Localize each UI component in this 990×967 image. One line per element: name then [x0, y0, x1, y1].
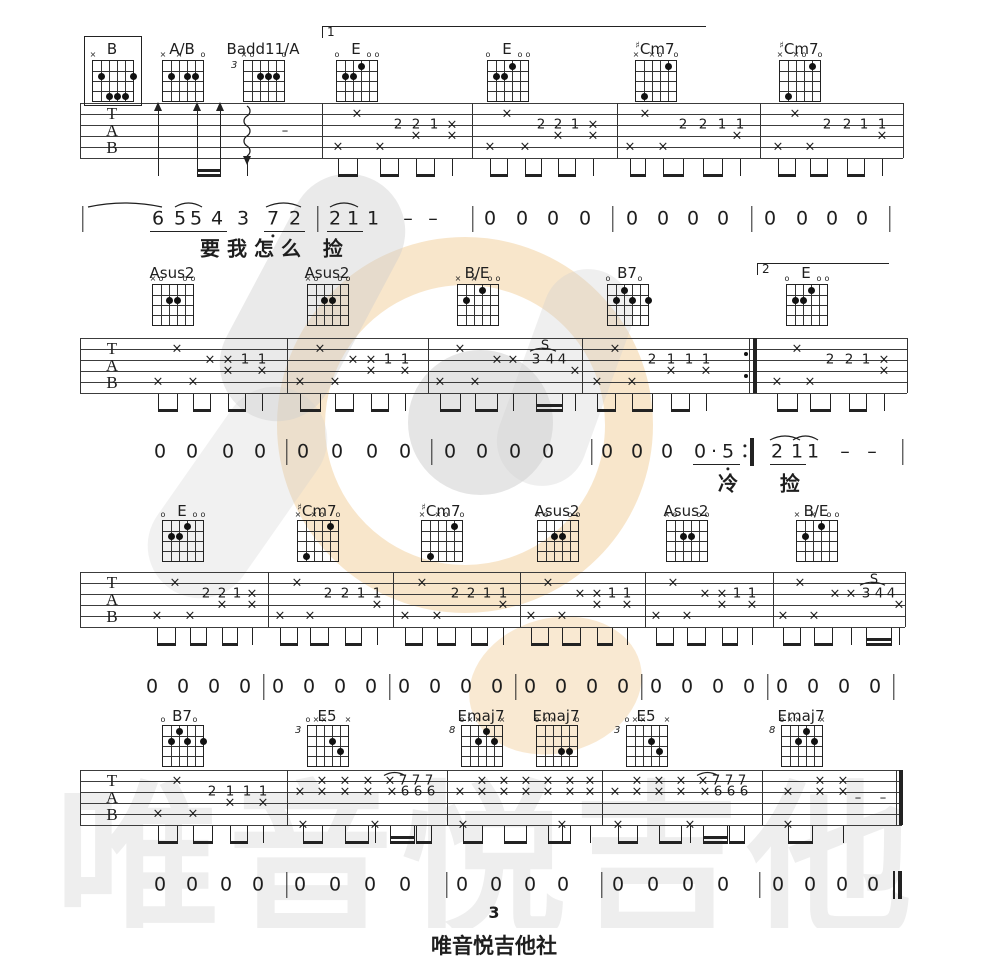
jianpu-rest: 0: [524, 876, 536, 895]
mute-marker: ×: [319, 715, 329, 724]
chord-dot: [641, 93, 648, 100]
tab-mute-note: ×: [217, 599, 228, 612]
open-marker: o: [822, 274, 832, 283]
chord-grid-line: [153, 305, 193, 306]
chord-grid: ×ooo: [152, 284, 194, 326]
jianpu-barline: [902, 439, 903, 465]
chord-dot: [551, 533, 558, 540]
tab-mute-note: ×: [485, 141, 496, 154]
chord-grid: ×ooo: [537, 520, 579, 562]
jianpu-rest: 0: [399, 876, 411, 895]
tab-note: 2: [699, 119, 708, 132]
barline: [428, 338, 429, 393]
tab-mute-note: ×: [352, 108, 363, 121]
note-stem: [752, 628, 753, 645]
jianpu-note: 2: [771, 443, 783, 462]
beam: [558, 174, 576, 177]
beam: [390, 841, 415, 844]
tab-note: 4: [558, 354, 567, 367]
chord-dot: [176, 533, 183, 540]
chord-grid-line: [538, 551, 578, 552]
beam: [228, 409, 246, 412]
chord-grid-line: [187, 726, 188, 766]
tab-mute-note: ×: [205, 354, 216, 367]
jianpu-rest: 0: [272, 678, 284, 697]
jianpu-barline: [767, 674, 768, 700]
tab-mute-note: ×: [348, 354, 359, 367]
staff-line: [80, 382, 907, 383]
chord-grid-line: [244, 91, 284, 92]
chord-dot: [493, 73, 500, 80]
chord-dot: [451, 523, 458, 530]
jianpu-barline: [263, 674, 264, 700]
tab-mute-note: ×: [188, 376, 199, 389]
tab-note: 1: [430, 119, 439, 132]
chord-grid-line: [462, 746, 502, 747]
open-marker: o: [372, 50, 382, 59]
jianpu-rest: 0: [867, 876, 879, 895]
chord-grid-line: [537, 736, 577, 737]
tab-mute-note: ×: [747, 599, 758, 612]
jianpu-rest: 0: [297, 443, 309, 462]
chord-grid: o×××3: [626, 725, 668, 767]
jianpu-rest: 0: [717, 876, 729, 895]
chord-grid: oo: [607, 284, 649, 326]
chord-grid: ×oo3: [243, 60, 285, 102]
jianpu-rest: 0: [239, 678, 251, 697]
chord-dot: [803, 728, 810, 735]
tab-mute-note: ×: [502, 108, 513, 121]
tab-note: 6: [714, 786, 723, 799]
jianpu-note: 2: [329, 210, 341, 229]
jianpu-rest: 0: [429, 678, 441, 697]
chord-grid-line: [797, 531, 837, 532]
tab-mute-note: ×: [152, 610, 163, 623]
open-marker: o: [158, 510, 168, 519]
beam: [703, 174, 723, 177]
tab-note: 1: [243, 786, 252, 799]
jianpu-note: 3: [237, 210, 249, 229]
tab-note: 3: [862, 588, 871, 601]
chord-dot: [174, 297, 181, 304]
chord-grid-line: [787, 295, 827, 296]
chord-grid-line: [627, 746, 667, 747]
jianpu-rest: 0: [764, 210, 776, 229]
chord-dot: [792, 297, 799, 304]
chord-dot: [114, 93, 121, 100]
tab-mute-note: ×: [682, 610, 693, 623]
tab-note: 1: [685, 354, 694, 367]
chord-grid-line: [163, 756, 203, 757]
beam: [338, 174, 358, 177]
jianpu-note: 5: [722, 443, 734, 462]
chord-grid: ××oo: [457, 284, 499, 326]
note-stem: [690, 826, 691, 843]
tab-mute-note: ×: [317, 786, 328, 799]
tab-note: –: [880, 791, 887, 804]
mute-marker: ×: [631, 50, 641, 59]
barline: [80, 103, 81, 158]
tab-mute-note: ×: [499, 786, 510, 799]
jianpu-rest: 0: [509, 443, 521, 462]
barline: [773, 572, 774, 627]
chord-grid-line: [675, 521, 676, 561]
jianpu-rest: 0: [586, 678, 598, 697]
mute-marker: ×: [158, 50, 168, 59]
open-marker: o: [279, 50, 289, 59]
beam: [778, 174, 796, 177]
tab-note: 2: [537, 119, 546, 132]
jianpu-rest: 0: [252, 876, 264, 895]
open-marker: o: [317, 510, 327, 519]
barline: [762, 770, 763, 825]
open-marker: o: [190, 715, 200, 724]
chord-grid-line: [496, 61, 497, 101]
end-barline: [903, 103, 904, 158]
lyric-syllable: 么: [281, 233, 301, 262]
jianpu-rest: 0: [687, 210, 699, 229]
open-marker: o: [782, 274, 792, 283]
chord-dot: [501, 73, 508, 80]
note-stem: [593, 159, 594, 176]
chord-dot: [483, 728, 490, 735]
jianpu-barline: [286, 872, 287, 898]
beam: [548, 841, 571, 844]
jianpu-rest: 0: [154, 443, 166, 462]
tab-mute-note: ×: [470, 376, 481, 389]
jianpu-rest: 0: [460, 678, 472, 697]
jianpu-note: 5: [174, 210, 186, 229]
beam: [536, 404, 563, 407]
tab-mute-note: ×: [400, 610, 411, 623]
jianpu-note: 5: [190, 210, 202, 229]
jianpu-rest: 0: [516, 210, 528, 229]
tab-note: S: [541, 339, 549, 352]
jianpu-rest: 0: [826, 210, 838, 229]
tab-note: 1: [862, 354, 871, 367]
chord-grid-line: [667, 551, 707, 552]
beam: [659, 841, 682, 844]
chord-grid-line: [494, 726, 495, 766]
note-stem: [263, 826, 264, 843]
jianpu-repeat-dot: [743, 444, 746, 447]
chord-dot: [122, 93, 129, 100]
strum-arrow: [197, 109, 198, 166]
open-marker: o: [156, 274, 166, 283]
chord-grid-line: [244, 71, 284, 72]
beam: [390, 836, 415, 839]
chord-dot: [273, 73, 280, 80]
lyric-syllable: 捡: [780, 468, 800, 497]
chord-grid-line: [538, 541, 578, 542]
chord-grid-line: [667, 531, 707, 532]
chord-dot: [621, 287, 628, 294]
jianpu-repeat-dot: [743, 454, 746, 457]
fret-number: 3: [231, 60, 237, 71]
chord-name: B: [107, 40, 117, 58]
tab-mute-note: ×: [400, 365, 411, 378]
tab-mute-note: ×: [830, 588, 841, 601]
tab-mute-note: ×: [565, 786, 576, 799]
tab-mute-note: ×: [223, 365, 234, 378]
beam: [504, 841, 527, 844]
tab-mute-note: ×: [790, 108, 801, 121]
beam: [597, 643, 613, 646]
jianpu-barline: [591, 439, 592, 465]
repeat-barline-thick: [753, 338, 757, 393]
sheet-page: 唯音悦吉他 TAB–×××221××××××221××××××2211××××2…: [0, 0, 990, 967]
jianpu-barline: [472, 206, 473, 232]
open-marker: o: [158, 715, 168, 724]
chord-dot: [808, 287, 815, 294]
chord-dot: [130, 73, 137, 80]
jianpu-note: –: [403, 210, 413, 229]
chord-dot: [558, 748, 565, 755]
beam: [536, 409, 563, 412]
tab-note: 6: [727, 786, 736, 799]
beam: [463, 841, 483, 844]
tab-mute-note: ×: [632, 786, 643, 799]
barline: [393, 572, 394, 627]
open-marker: o: [702, 510, 712, 519]
lyric-syllable: 捡: [323, 233, 343, 262]
chord-dot: [200, 738, 207, 745]
open-marker: o: [493, 274, 503, 283]
chord-grid-line: [805, 521, 806, 561]
chord-grid-line: [627, 756, 667, 757]
tab-note: 6: [427, 786, 436, 799]
jianpu-rest: 0: [186, 443, 198, 462]
open-marker: o: [198, 510, 208, 519]
chord-dot: [800, 297, 807, 304]
tab-mute-note: ×: [622, 599, 633, 612]
chord-grid-line: [163, 71, 203, 72]
jianpu-rest: 0: [626, 210, 638, 229]
beam: [597, 409, 616, 412]
chord-grid-line: [337, 71, 377, 72]
beam: [437, 643, 456, 646]
jianpu-repeat-thick: [750, 438, 754, 466]
beam: [703, 841, 728, 844]
chord-grid-line: [298, 531, 338, 532]
tab-note: 1: [860, 119, 869, 132]
beam: [190, 643, 207, 646]
jianpu-rest: 0: [804, 876, 816, 895]
beam: [630, 174, 646, 177]
jianpu-barline: [889, 206, 890, 232]
jianpu-rest: 0: [476, 443, 488, 462]
repeat-dot: [744, 352, 748, 356]
tab-mute-note: ×: [330, 376, 341, 389]
tab-note: 1: [357, 588, 366, 601]
chord-grid-line: [814, 726, 815, 766]
jianpu-rest: 0: [254, 443, 266, 462]
jianpu-rest: 0: [657, 210, 669, 229]
chord-grid: o××o: [536, 725, 578, 767]
chord-grid-line: [458, 315, 498, 316]
beam: [525, 174, 542, 177]
fret-number: 8: [769, 725, 775, 736]
chord-grid-line: [782, 746, 822, 747]
mute-marker: ×: [808, 510, 818, 519]
beam: [222, 643, 238, 646]
tab-mute-note: ×: [333, 141, 344, 154]
jianpu-rest: 0: [647, 876, 659, 895]
jianpu-rest: 0: [220, 876, 232, 895]
open-marker: o: [635, 274, 645, 283]
tab-note: 2: [451, 588, 460, 601]
jianpu-rest: 0: [154, 876, 166, 895]
note-stem: [627, 628, 628, 645]
chord-grid-line: [169, 285, 170, 325]
chord-dot: [802, 533, 809, 540]
jianpu-rest: 0: [717, 210, 729, 229]
open-marker: o: [483, 50, 493, 59]
beam: [193, 409, 211, 412]
tab-note: 2: [208, 786, 217, 799]
tab-mute-note: ×: [815, 786, 826, 799]
chord-dot: [98, 73, 105, 80]
barline: [602, 770, 603, 825]
mute-marker: ×: [174, 50, 184, 59]
chord-grid-line: [422, 531, 462, 532]
chord-grid-line: [93, 81, 133, 82]
chord-grid-line: [422, 541, 462, 542]
chord-dot: [329, 738, 336, 745]
chord-grid-line: [683, 521, 684, 561]
chord-dot: [665, 63, 672, 70]
chord-grid-line: [422, 551, 462, 552]
beam: [345, 643, 362, 646]
jianpu-rest: 0: [547, 210, 559, 229]
beam: [847, 174, 865, 177]
chord-dot: [166, 297, 173, 304]
tab-mute-note: ×: [257, 365, 268, 378]
tab-note: 4: [875, 588, 884, 601]
tab-letter: B: [106, 373, 117, 393]
tab-mute-note: ×: [879, 365, 890, 378]
tab-letter: B: [106, 607, 117, 627]
jianpu-note: 1: [367, 210, 379, 229]
beam: [632, 409, 653, 412]
chord-grid: ××oo: [796, 520, 838, 562]
chord-grid-line: [314, 521, 315, 561]
jianpu-rest: 0: [856, 210, 868, 229]
chord-dot: [509, 63, 516, 70]
chord-dot: [475, 738, 482, 745]
beam: [405, 643, 423, 646]
chord-dot: [168, 533, 175, 540]
note-stem: [590, 826, 591, 843]
jianpu-rest: 0: [650, 678, 662, 697]
jianpu-note: 1: [807, 443, 819, 462]
jianpu-rest: 0: [177, 678, 189, 697]
tab-mute-note: ×: [783, 786, 794, 799]
staff-line: [80, 583, 905, 584]
chord-grid-line: [636, 81, 676, 82]
tab-mute-note: ×: [553, 130, 564, 143]
jianpu-rest: 0: [772, 876, 784, 895]
chord-dot: [303, 553, 310, 560]
final-barline-thick: [899, 770, 903, 825]
tab-mute-note: ×: [305, 610, 316, 623]
chord-grid-line: [369, 61, 370, 101]
tab-mute-note: ×: [153, 376, 164, 389]
chord-name: E: [177, 502, 186, 520]
chord-grid-line: [337, 81, 377, 82]
mute-marker: ×: [638, 715, 648, 724]
tab-mute-note: ×: [658, 141, 669, 154]
beam: [335, 409, 354, 412]
chord-grid-line: [322, 521, 323, 561]
barline: [617, 103, 618, 158]
jianpu-rest: 0: [456, 876, 468, 895]
chord-dot: [358, 63, 365, 70]
staff-line: [80, 572, 905, 573]
staff-line: [80, 825, 902, 826]
chord-grid-line: [813, 521, 814, 561]
final-barline-thin: [896, 770, 897, 825]
note-stem: [851, 628, 852, 645]
beam: [371, 409, 389, 412]
chord-grid: ××o: [162, 60, 204, 102]
mute-marker: ×: [88, 50, 98, 59]
staff-line: [80, 125, 903, 126]
chord-grid-line: [163, 91, 203, 92]
tab-note: 1: [608, 588, 617, 601]
chord-grid: oo: [162, 725, 204, 767]
chord-grid-line: [153, 315, 193, 316]
chord-grid-line: [163, 531, 203, 532]
volta-number: 2: [762, 262, 770, 276]
note-stem: [262, 394, 263, 411]
barline: [287, 770, 288, 825]
mute-marker: ×: [469, 274, 479, 283]
jianpu-final-thin: [893, 871, 895, 899]
beam: [849, 409, 867, 412]
chord-dot: [656, 748, 663, 755]
tab-mute-note: ×: [387, 786, 398, 799]
chord-grid-line: [488, 71, 528, 72]
barline: [268, 572, 269, 627]
jianpu-rest: 0: [612, 876, 624, 895]
chord-grid-line: [520, 61, 521, 101]
chord-dot: [479, 287, 486, 294]
chord-grid-line: [171, 726, 172, 766]
tab-mute-note: ×: [172, 343, 183, 356]
jianpu-rest: 0: [146, 678, 158, 697]
chord-grid-line: [93, 71, 133, 72]
chord-grid-line: [627, 736, 667, 737]
beam: [490, 174, 508, 177]
chord-grid-line: [797, 541, 837, 542]
volta-number: 1: [327, 25, 335, 39]
chord-grid-line: [345, 61, 346, 101]
jianpu-rest: 0: [331, 443, 343, 462]
chord-dot: [427, 553, 434, 560]
staff-line: [80, 605, 905, 606]
chord-grid-line: [446, 521, 447, 561]
tab-mute-note: ×: [521, 786, 532, 799]
chord-grid-line: [340, 285, 341, 325]
jianpu-rest: 0: [807, 678, 819, 697]
tab-mute-note: ×: [447, 130, 458, 143]
open-marker: o: [311, 274, 321, 283]
staff-line: [80, 114, 903, 115]
repeat-dot: [744, 374, 748, 378]
chord-grid: ooo: [336, 60, 378, 102]
tab-mute-note: ×: [610, 343, 621, 356]
